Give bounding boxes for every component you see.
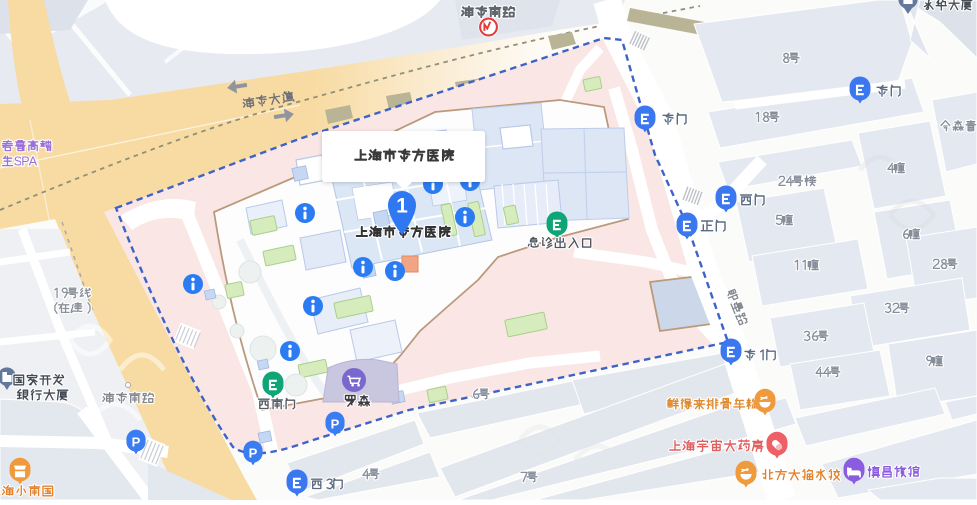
svg-text:A: A [29, 155, 38, 169]
svg-text:P: P [132, 435, 141, 450]
svg-text:P: P [249, 446, 258, 461]
svg-text:P: P [331, 417, 340, 432]
svg-text:1: 1 [396, 195, 408, 218]
